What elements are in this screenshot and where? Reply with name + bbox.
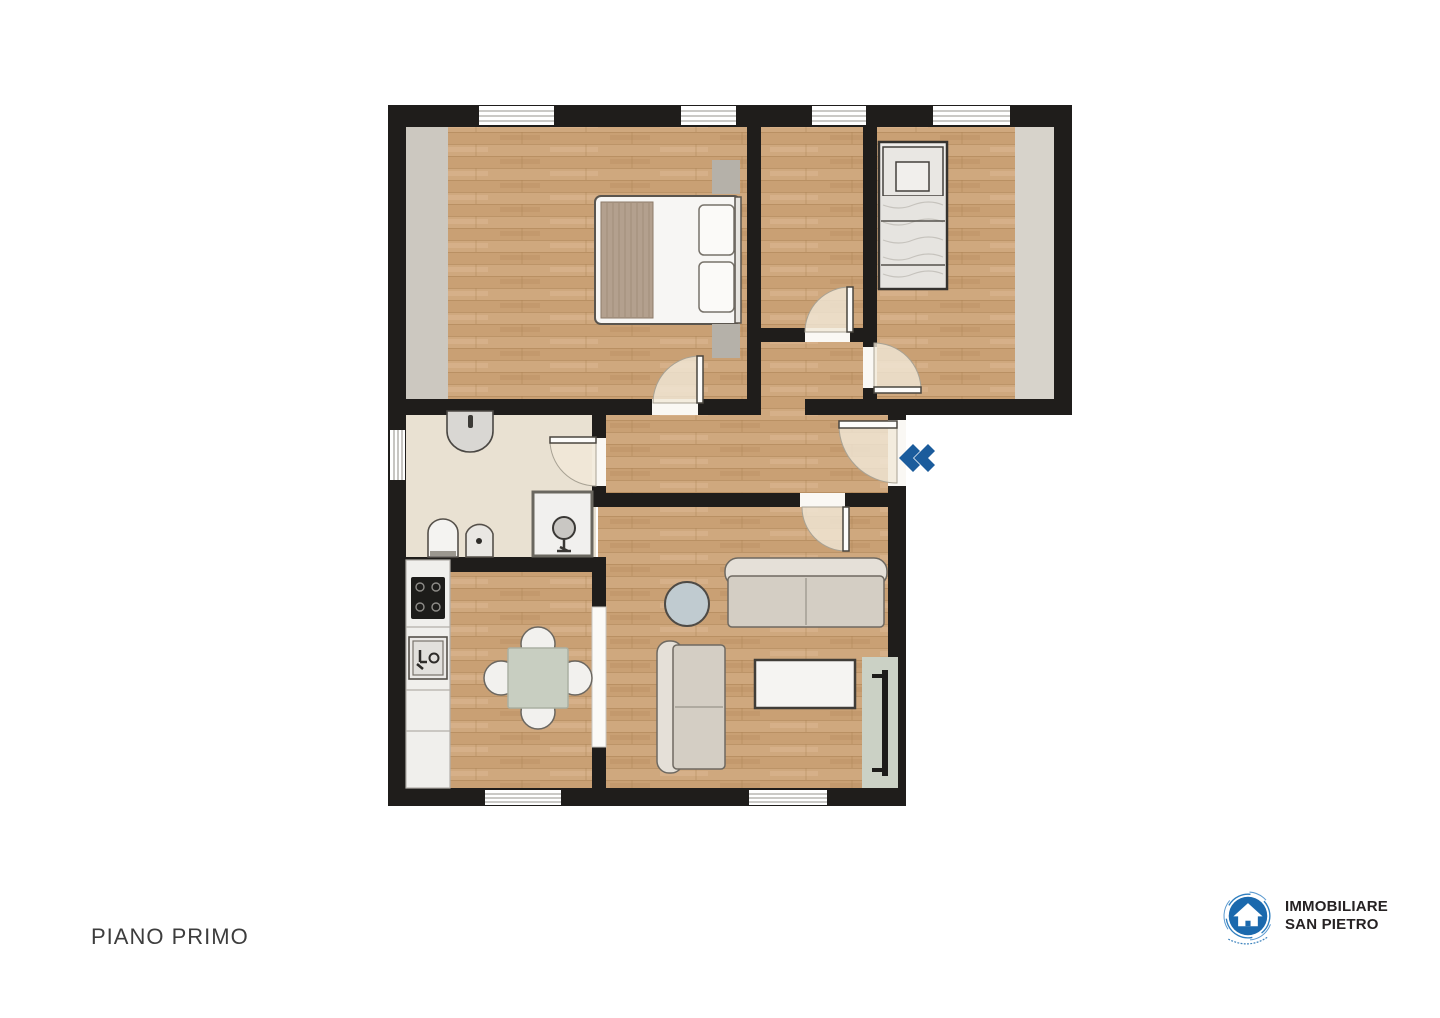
wall-hall-bottom-a [592, 493, 800, 507]
wall-mid-band-a [388, 399, 652, 415]
wall-bathroom-hall-a [592, 399, 606, 438]
window [479, 106, 554, 125]
floor-plan-canvas [0, 0, 1440, 1018]
wall-hall-bottom-b [845, 493, 888, 507]
toilet-seat [430, 551, 456, 556]
pillow [699, 262, 734, 312]
single-bed [879, 142, 947, 289]
window [933, 106, 1010, 125]
loveseat [657, 641, 725, 773]
shower-head-icon [553, 517, 575, 539]
door-leaf [697, 356, 703, 403]
door-leaf [550, 437, 596, 443]
bidet-faucet-icon [476, 538, 482, 544]
floor-label: PIANO PRIMO [91, 924, 249, 950]
wall-bedrooms-divider-upper [863, 127, 877, 347]
bed-blanket [601, 202, 653, 318]
logo-mark [1218, 884, 1278, 960]
wall-kitchen-living-b [592, 747, 606, 790]
stove [411, 577, 445, 619]
bed-blanket [881, 196, 945, 287]
pillow [699, 205, 734, 255]
door-leaf [843, 507, 849, 551]
master-bedroom-wardrobe-strip [406, 127, 448, 399]
door-leaf [847, 287, 853, 332]
coffee-table [755, 660, 855, 708]
window [749, 790, 827, 805]
window [390, 430, 405, 480]
page: PIANO PRIMO IMMOBILIARE SAN PIETRO [0, 0, 1440, 1018]
logo-wordmark: IMMOBILIARE SAN PIETRO [1285, 898, 1388, 934]
sofa [725, 558, 887, 627]
wall-master-right [747, 127, 761, 415]
wall-middle-room-bottom-a [761, 328, 805, 342]
round-side-table [665, 582, 709, 626]
dining-table [508, 648, 568, 708]
faucet-icon [468, 415, 473, 428]
wall-right-upper-outer [1054, 105, 1072, 413]
wall-kitchen-living-a [592, 557, 606, 607]
door-threshold [800, 493, 845, 507]
window [812, 106, 866, 125]
logo-name-line1: IMMOBILIARE [1285, 898, 1388, 916]
headboard [735, 197, 741, 323]
wall-bottom-outer [388, 788, 906, 806]
kitchen-living-passage [592, 607, 606, 747]
window [681, 106, 736, 125]
nightstand [712, 160, 740, 194]
door-leaf [874, 387, 921, 393]
nightstand [712, 324, 740, 358]
logo-name-line2: SAN PIETRO [1285, 916, 1388, 934]
brand-logo: IMMOBILIARE SAN PIETRO [1218, 884, 1388, 960]
entry-door-leaf [839, 421, 897, 428]
pillow [896, 162, 929, 191]
single-bedroom-wardrobe-strip [1015, 127, 1055, 402]
window [485, 790, 561, 805]
wall-mid-band-c [805, 399, 1072, 415]
